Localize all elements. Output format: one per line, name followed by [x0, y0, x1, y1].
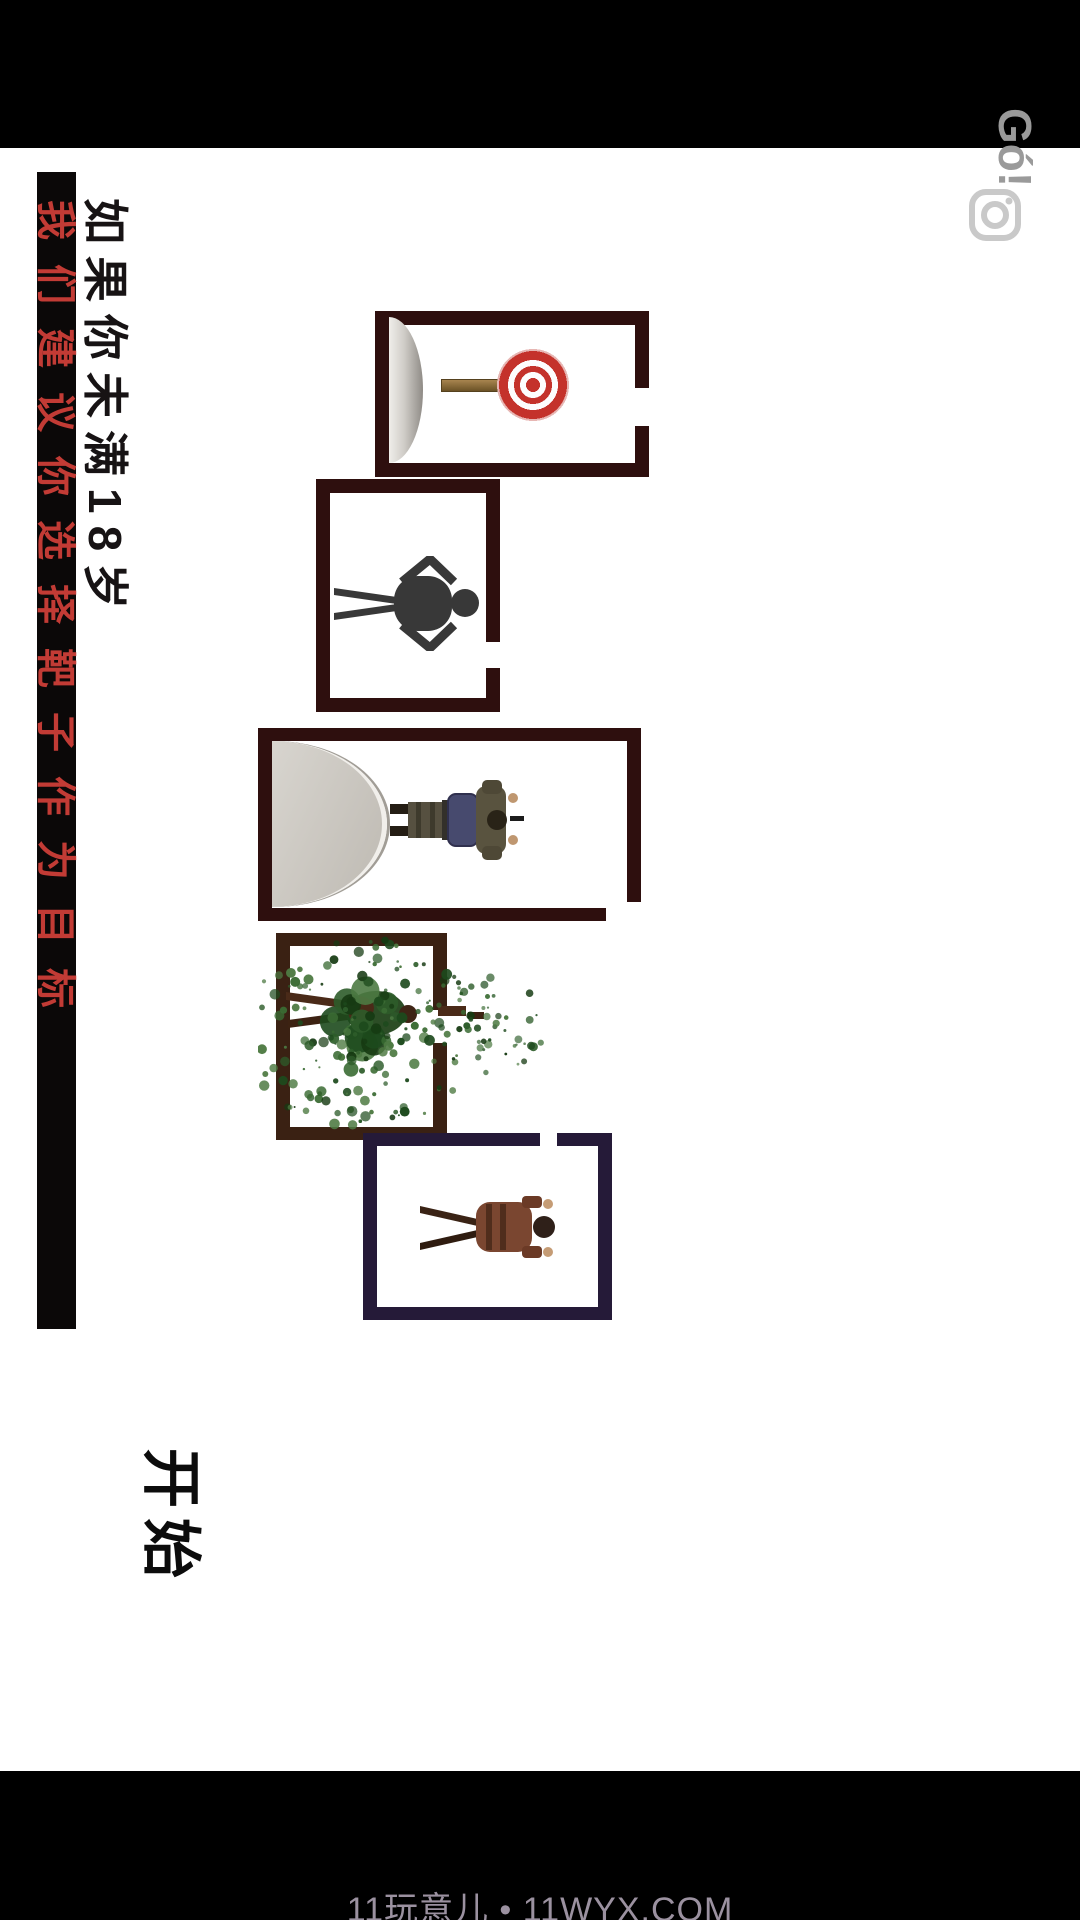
- wall: [486, 479, 500, 642]
- site-watermark-text: 11玩意儿 • 11WYX.COM: [0, 1882, 1080, 1920]
- wall: [258, 728, 272, 921]
- wall: [316, 479, 500, 493]
- wall: [258, 728, 641, 741]
- wall: [316, 479, 330, 712]
- wall: [316, 698, 500, 712]
- wall: [598, 1133, 612, 1320]
- screen: 我们建议你选择靶子作为目标 如果你未满18岁: [0, 0, 1080, 1920]
- wall: [363, 1307, 612, 1320]
- standing-soldier-icon[interactable]: [420, 1196, 560, 1260]
- dead-soldier-splatter-icon[interactable]: [258, 928, 578, 1173]
- warning-age-text: 如果你未满18岁: [82, 198, 128, 621]
- wall: [375, 463, 649, 477]
- warning-advice-text: 我们建议你选择靶子作为目标: [35, 200, 75, 1032]
- wall: [635, 311, 649, 388]
- target-stick: [441, 379, 501, 392]
- watermark-logo: Gó!: [992, 108, 1038, 187]
- start-button[interactable]: 开始: [140, 1448, 200, 1588]
- camera-record-icon[interactable]: [966, 186, 1024, 244]
- wall: [375, 311, 649, 325]
- bullseye-icon[interactable]: [495, 347, 571, 423]
- wall: [258, 908, 606, 921]
- wall: [375, 311, 389, 477]
- wall: [627, 728, 641, 902]
- human-silhouette-icon[interactable]: [332, 556, 482, 651]
- wall: [635, 426, 649, 477]
- top-letterbox-bar: [0, 0, 1080, 148]
- bottom-letterbox-bar: 11玩意儿 • 11WYX.COM: [0, 1771, 1080, 1920]
- prone-soldier-icon[interactable]: [390, 780, 525, 860]
- wall: [486, 668, 500, 712]
